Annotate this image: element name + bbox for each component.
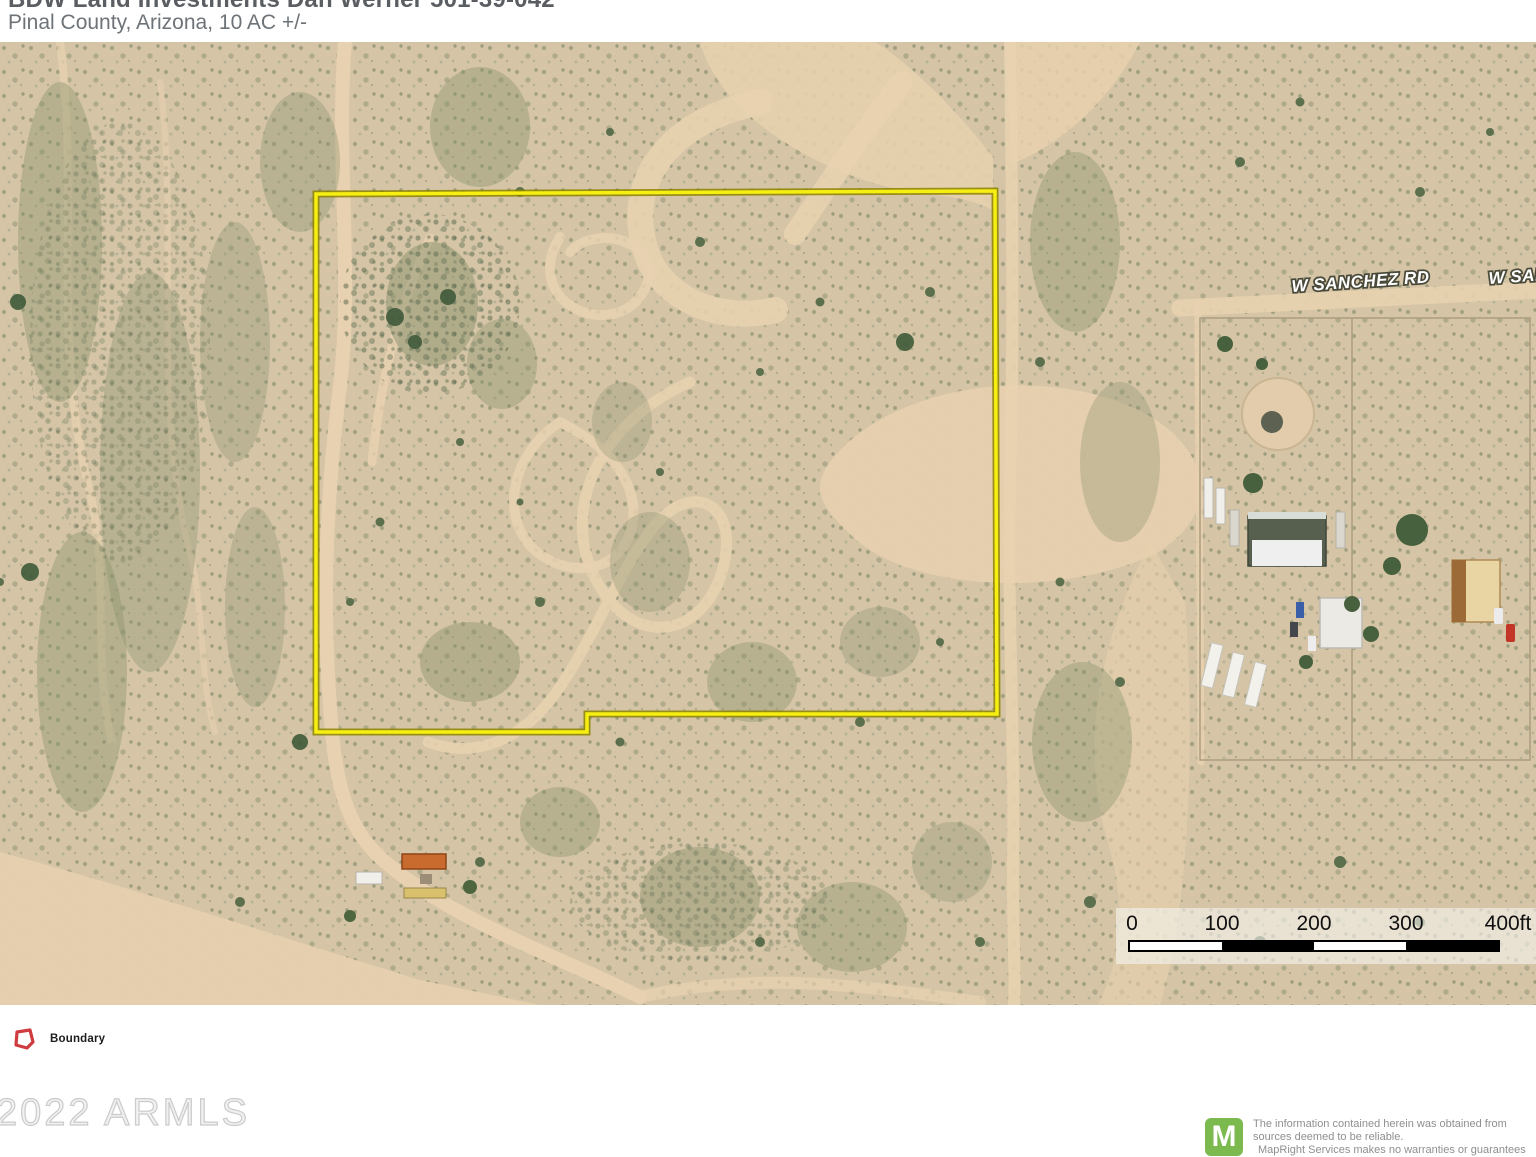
trailer [1230,510,1239,546]
car-white [1308,636,1316,651]
car-blue [1296,602,1304,618]
aerial-map-canvas: W SANCHEZ RD W SANCHEZ RD [0,42,1536,1005]
mapright-disclaimer: M The information contained herein was o… [1205,1118,1536,1157]
scale-tick-100: 100 [1204,912,1239,936]
armls-watermark: 2022 ARMLS [0,1092,250,1135]
legend: Boundary [12,1026,105,1052]
trailer [1336,512,1345,548]
legend-item-boundary: Boundary [50,1033,105,1045]
trailer [1216,488,1225,524]
mapright-logo-icon: M [1205,1118,1243,1156]
house-shadow [1452,560,1466,622]
car-dark [1290,622,1298,637]
boundary-legend-icon [12,1027,36,1051]
trailer [1204,478,1213,518]
page-subtitle: Pinal County, Arizona, 10 AC +/- [8,11,307,35]
white-trailer [356,872,382,884]
barn-awning [1252,540,1322,566]
scale-tick-0: 0 [1126,912,1138,936]
barn-ridge [1248,512,1326,519]
disclaimer-line: sources deemed to be reliable. [1253,1131,1536,1144]
scale-tick-200: 200 [1296,912,1331,936]
disclaimer-line: MapRight Services makes no warranties or… [1253,1144,1536,1157]
yellow-roof-building [404,888,446,898]
disclaimer-text: The information contained herein was obt… [1253,1118,1536,1157]
disclaimer-line: The information contained herein was obt… [1253,1118,1536,1131]
scale-tick-400ft: 400ft [1485,912,1532,936]
scale-tick-300: 300 [1388,912,1423,936]
car-red [1506,624,1515,642]
orange-roof-building [402,854,446,869]
pond-water [1261,411,1283,433]
map-title-bar: BDW Land Investments Dan Werner 501-39-0… [0,0,1536,42]
scale-bar-segments [1128,940,1500,952]
shed [420,874,432,884]
car-white [1494,608,1503,624]
scale-bar: 0 100 200 300 400ft [1116,908,1536,964]
aerial-map-image: W SANCHEZ RD W SANCHEZ RD [0,42,1536,1005]
